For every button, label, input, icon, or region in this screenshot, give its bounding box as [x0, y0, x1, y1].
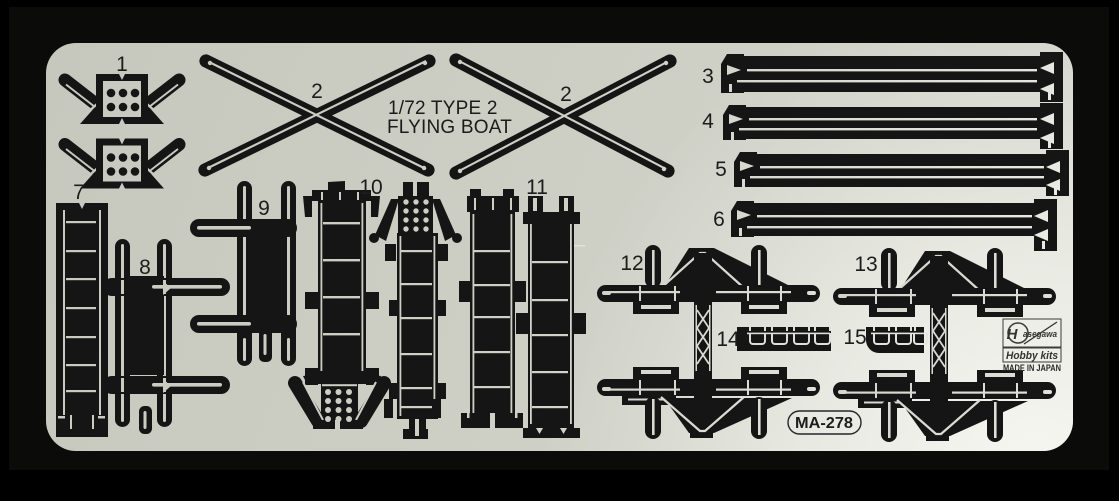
svg-text:7: 7 [73, 181, 85, 204]
svg-text:4: 4 [702, 110, 714, 133]
svg-text:MADE IN JAPAN: MADE IN JAPAN [1003, 363, 1061, 373]
svg-text:Hobby kits: Hobby kits [1006, 350, 1058, 362]
svg-text:6: 6 [713, 208, 725, 231]
svg-text:15: 15 [843, 326, 866, 349]
svg-text:10: 10 [359, 176, 382, 199]
svg-text:2: 2 [560, 83, 572, 106]
svg-text:H: H [1007, 326, 1019, 343]
svg-text:13: 13 [854, 253, 877, 276]
svg-text:FLYING BOAT: FLYING BOAT [387, 117, 512, 138]
svg-text:1/72 TYPE 2: 1/72 TYPE 2 [388, 98, 498, 119]
svg-text:9: 9 [258, 197, 270, 220]
svg-text:1: 1 [116, 53, 128, 76]
svg-text:8: 8 [139, 256, 151, 279]
svg-text:3: 3 [702, 65, 714, 88]
svg-text:11: 11 [526, 176, 548, 199]
svg-text:12: 12 [620, 252, 643, 275]
svg-text:MA-278: MA-278 [795, 415, 853, 432]
svg-text:5: 5 [715, 158, 727, 181]
svg-text:2: 2 [311, 80, 323, 103]
svg-text:14: 14 [716, 328, 740, 351]
